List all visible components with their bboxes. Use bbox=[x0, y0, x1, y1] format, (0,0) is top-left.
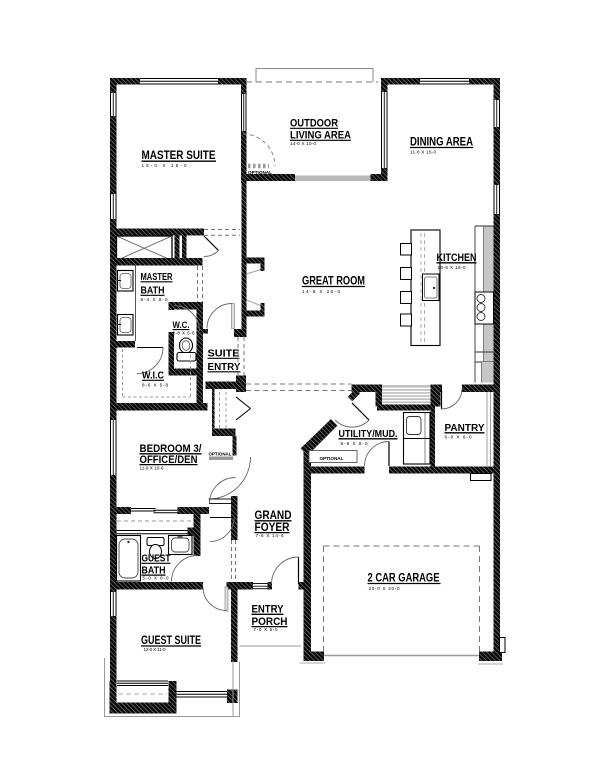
svg-text:11-0 X 10-6: 11-0 X 10-6 bbox=[140, 465, 164, 470]
svg-text:6-0 X 6-0: 6-0 X 6-0 bbox=[445, 435, 472, 440]
svg-text:2 CAR GARAGE: 2 CAR GARAGE bbox=[368, 573, 440, 585]
svg-text:DINING AREA: DINING AREA bbox=[410, 137, 473, 149]
svg-text:OPTIONAL: OPTIONAL bbox=[209, 451, 232, 457]
svg-text:5-6 X 8-0: 5-6 X 8-0 bbox=[341, 441, 368, 446]
svg-text:2-8 X 5-6: 2-8 X 5-6 bbox=[173, 331, 195, 336]
svg-text:W.C.: W.C. bbox=[173, 320, 190, 330]
svg-text:OUTDOOR: OUTDOOR bbox=[290, 118, 338, 130]
svg-text:12-0 X 11-0: 12-0 X 11-0 bbox=[144, 647, 166, 652]
svg-text:7-6 X 14-6: 7-6 X 14-6 bbox=[256, 533, 284, 538]
svg-text:GUEST SUITE: GUEST SUITE bbox=[141, 635, 201, 647]
svg-text:OPTIONAL: OPTIONAL bbox=[248, 170, 272, 176]
svg-text:15-0 X 15-0: 15-0 X 15-0 bbox=[142, 163, 187, 168]
svg-text:GREAT ROOM: GREAT ROOM bbox=[302, 276, 365, 288]
svg-text:8-4 X 8-0: 8-4 X 8-0 bbox=[141, 297, 168, 302]
svg-text:14-8 X 26-0: 14-8 X 26-0 bbox=[302, 289, 340, 294]
svg-text:OPTIONAL: OPTIONAL bbox=[320, 456, 344, 462]
svg-text:10-6 X 16-0: 10-6 X 16-0 bbox=[438, 265, 466, 270]
svg-text:14-0 X 10-0: 14-0 X 10-0 bbox=[290, 141, 316, 146]
svg-text:11-6 X 15-0: 11-6 X 15-0 bbox=[410, 150, 436, 155]
svg-text:5-0 X 8-0: 5-0 X 8-0 bbox=[143, 575, 169, 580]
svg-text:7-0 X 6-0: 7-0 X 6-0 bbox=[254, 627, 278, 632]
svg-text:8-6 X 5-8: 8-6 X 5-8 bbox=[142, 383, 168, 388]
svg-text:20-0 X 20-0: 20-0 X 20-0 bbox=[369, 586, 400, 591]
svg-text:MASTER SUITE: MASTER SUITE bbox=[142, 150, 216, 162]
